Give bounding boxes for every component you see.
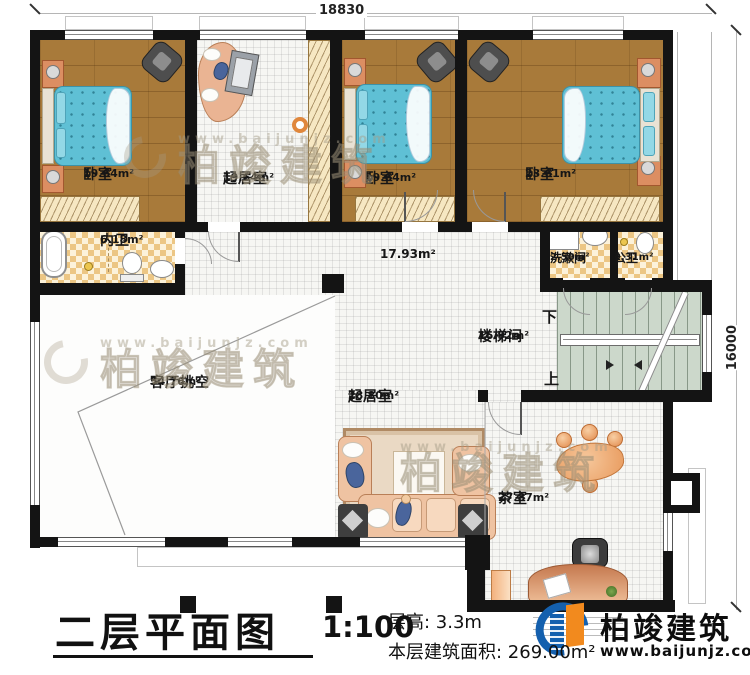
floor-drain: [84, 262, 93, 271]
dimension-right-value: 16000: [722, 325, 743, 370]
nightstand: [637, 58, 661, 88]
window-sill-outline: [532, 16, 624, 30]
dimension-line-right: [736, 30, 737, 610]
cushion: [201, 88, 219, 102]
toilet-tank: [120, 274, 144, 282]
brand-url: www.baijunjz.com: [600, 642, 750, 660]
toilet: [636, 232, 654, 254]
pier-window: [671, 481, 692, 505]
wall: [548, 390, 712, 402]
room-area: 19.64m²: [83, 168, 134, 180]
tea-stool: [556, 432, 572, 448]
person-head: [401, 494, 411, 504]
title-underline: [53, 655, 313, 658]
wall: [175, 222, 185, 238]
wall: [590, 278, 625, 288]
stair-direction-arrow: [606, 360, 614, 370]
side-table: [338, 504, 368, 540]
pillow: [643, 92, 655, 122]
wardrobe: [308, 40, 332, 222]
wall: [540, 278, 563, 288]
pillow: [56, 128, 66, 158]
nightstand: [344, 58, 366, 86]
wall: [438, 222, 472, 232]
cushion: [366, 508, 390, 528]
pillow: [358, 124, 368, 154]
bed-headboard: [42, 88, 54, 164]
wall: [478, 390, 488, 402]
room-area: 23.61m²: [525, 168, 576, 180]
window: [30, 322, 40, 505]
pillow: [643, 126, 655, 156]
room-area: 27.87m²: [498, 492, 549, 504]
sink: [150, 260, 174, 278]
dimension-top-value: 18830: [316, 3, 367, 18]
wall: [330, 30, 342, 222]
wall: [663, 551, 673, 612]
stair-up-label: 上: [544, 368, 559, 389]
room-area: 54.76m²: [150, 376, 201, 388]
window: [702, 315, 712, 372]
tea-stool: [581, 424, 598, 441]
window: [360, 537, 465, 547]
wall: [175, 264, 185, 283]
cushion: [342, 442, 364, 458]
room-area: 2.31m²: [614, 252, 653, 263]
bed-blanket: [106, 88, 130, 164]
floor-living-void: [40, 295, 335, 537]
cabinet: [491, 570, 511, 604]
wall: [521, 390, 548, 402]
dimension-line-top: [40, 13, 712, 14]
column: [322, 274, 344, 293]
nightstand: [344, 160, 366, 188]
wall: [663, 395, 673, 473]
floor-area-text: 本层建筑面积: 269.00m²: [388, 638, 596, 664]
plan-title: 二层平面图: [55, 600, 280, 658]
room-area: 17.93m²: [380, 248, 436, 261]
window: [200, 30, 306, 40]
window: [663, 513, 673, 551]
corner-column: [465, 535, 490, 570]
pillow: [56, 92, 66, 124]
cushion: [203, 48, 221, 61]
wall: [40, 537, 58, 547]
room-area: 6.18m²: [100, 234, 143, 246]
window-sill-outline: [364, 16, 459, 30]
bed-headboard: [344, 88, 356, 160]
wall: [292, 537, 360, 547]
floor-height-text: 层高: 3.3m: [388, 608, 482, 634]
floor-plan: 18830 16000: [0, 0, 750, 675]
nightstand: [42, 165, 64, 193]
stair-down-label: 下: [542, 306, 557, 327]
window: [533, 30, 623, 40]
wall: [165, 537, 228, 547]
pillow: [358, 90, 368, 120]
cushion: [458, 454, 482, 472]
room-area: 19.64m²: [223, 172, 274, 184]
window: [65, 30, 153, 40]
window-sill-outline: [65, 16, 153, 30]
wall: [30, 30, 40, 322]
wall: [508, 222, 663, 232]
room-area: 16.92m²: [478, 330, 529, 342]
wall: [663, 30, 673, 292]
window: [58, 537, 165, 547]
wall: [240, 222, 402, 232]
dimension-tick: [29, 3, 40, 14]
wall: [610, 222, 618, 278]
floor-drain: [620, 238, 628, 246]
room-area: 19.64m²: [365, 172, 416, 184]
room-area: 28.80m²: [348, 390, 399, 402]
room-area: 2.50m²: [550, 252, 589, 263]
roof-outline: [677, 32, 678, 282]
roof-outline: [711, 32, 712, 282]
bathtub: [41, 230, 67, 278]
stair-handrail: [560, 334, 700, 346]
seat-cushion: [426, 498, 456, 532]
wardrobe: [540, 196, 660, 222]
wall: [652, 278, 663, 288]
window-sill-outline: [199, 16, 306, 30]
toilet: [122, 252, 142, 274]
nightstand: [42, 60, 64, 88]
wall: [30, 505, 40, 548]
stair-direction-arrow: [634, 360, 642, 370]
wardrobe: [40, 196, 140, 222]
round-stool: [292, 117, 308, 133]
plant: [606, 586, 617, 597]
wall: [455, 30, 467, 222]
wall: [30, 283, 185, 295]
window: [365, 30, 458, 40]
window: [228, 537, 292, 547]
bed-blanket: [406, 86, 430, 162]
wall: [185, 30, 197, 222]
